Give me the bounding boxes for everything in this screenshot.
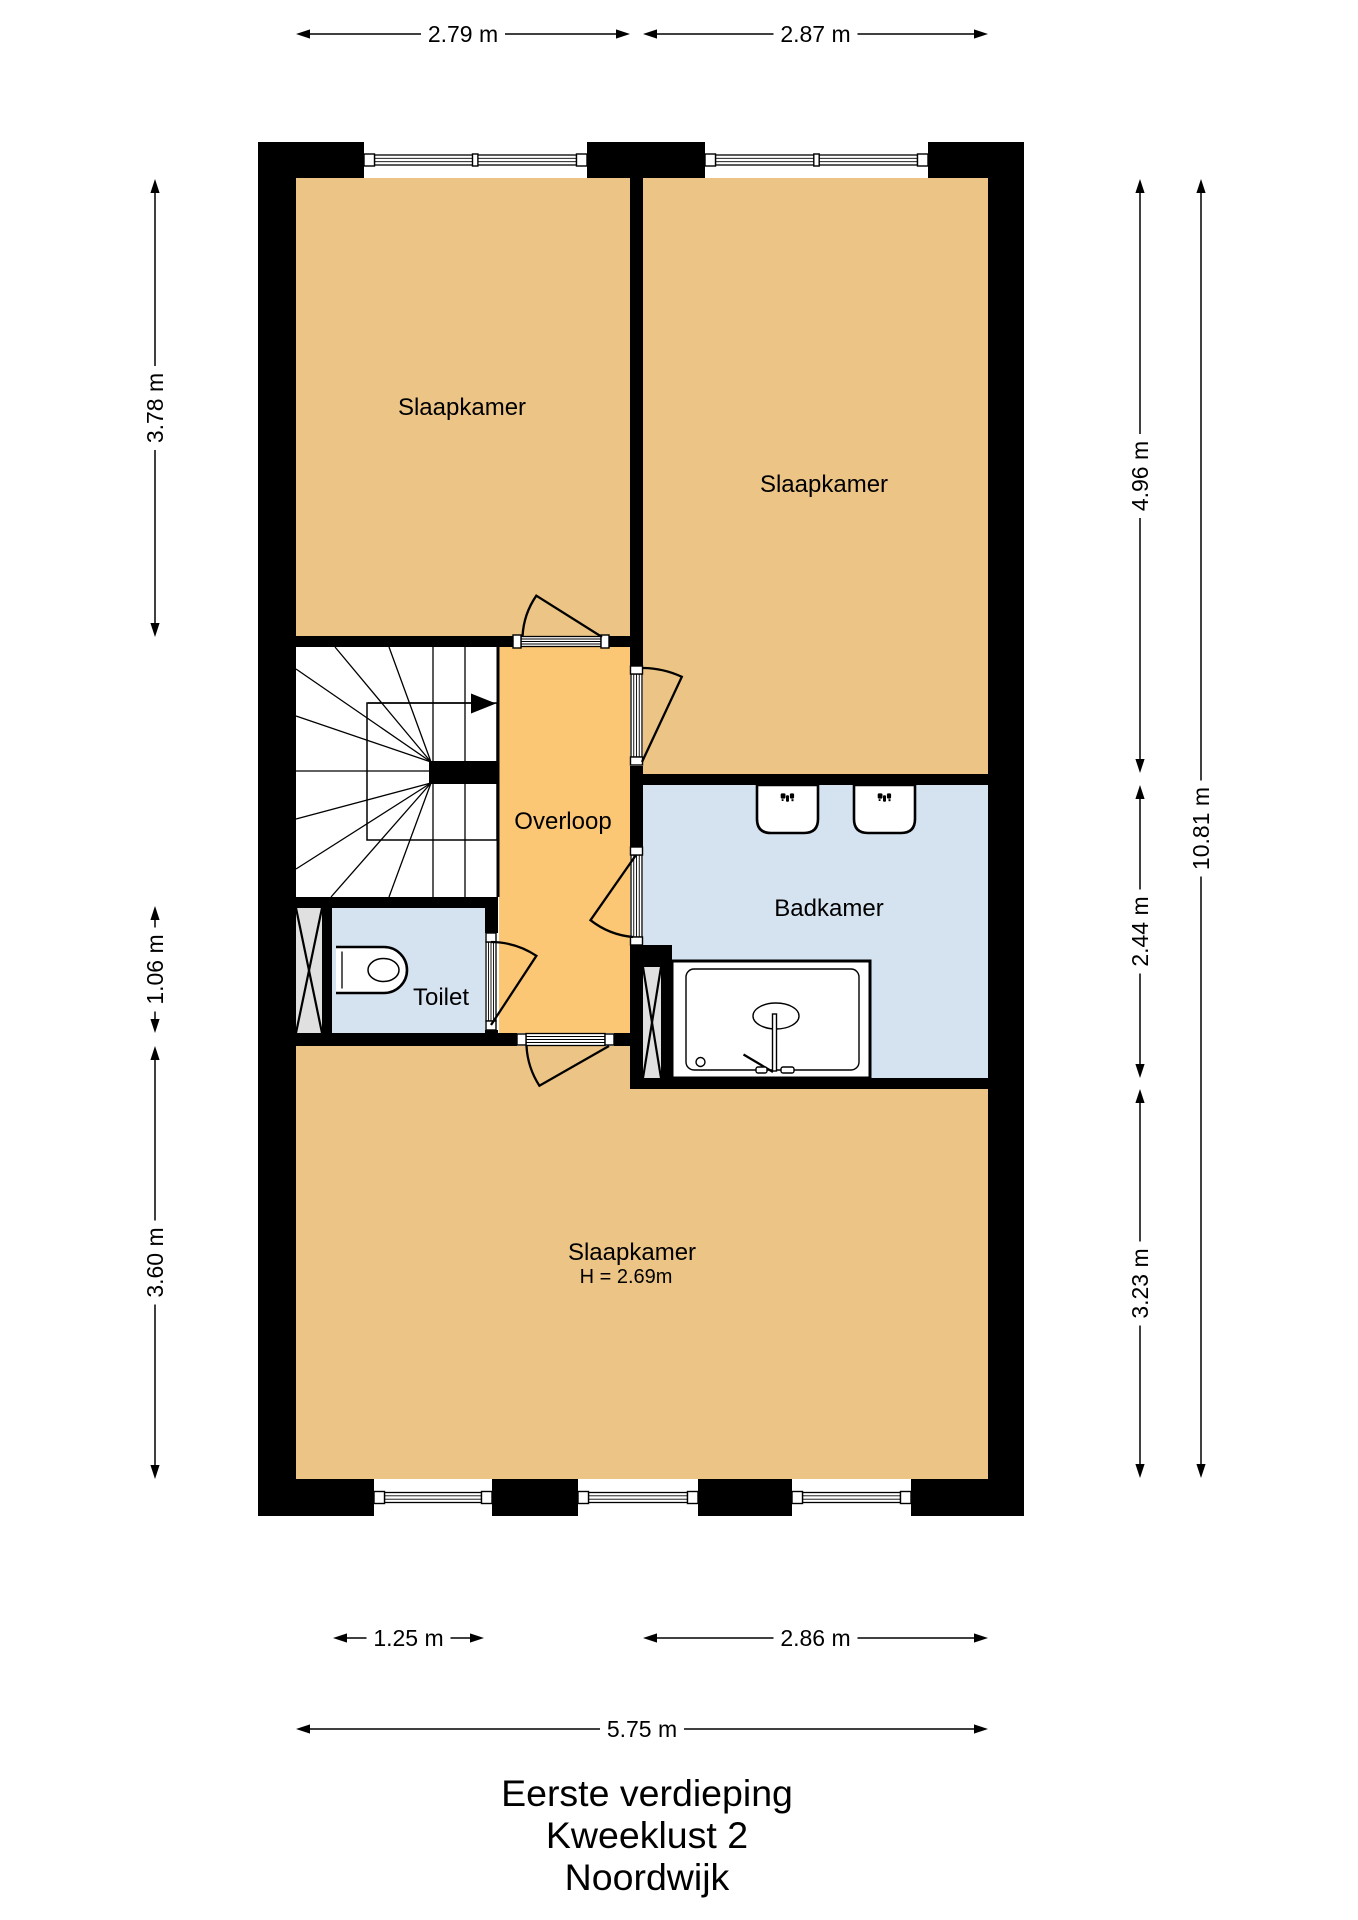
svg-text:4.96 m: 4.96 m — [1127, 441, 1153, 511]
svg-text:2.79 m: 2.79 m — [428, 21, 498, 47]
svg-text:5.75 m: 5.75 m — [607, 1716, 677, 1742]
svg-text:Noordwijk: Noordwijk — [565, 1856, 730, 1898]
svg-text:1.06 m: 1.06 m — [142, 934, 168, 1004]
svg-text:3.78 m: 3.78 m — [142, 373, 168, 443]
svg-text:2.86 m: 2.86 m — [780, 1625, 850, 1651]
svg-text:Eerste verdieping: Eerste verdieping — [501, 1772, 793, 1814]
svg-text:3.60 m: 3.60 m — [142, 1227, 168, 1297]
svg-text:Slaapkamer: Slaapkamer — [568, 1239, 696, 1266]
svg-text:Slaapkamer: Slaapkamer — [760, 471, 888, 498]
svg-text:Badkamer: Badkamer — [774, 895, 883, 922]
svg-text:2.87 m: 2.87 m — [780, 21, 850, 47]
svg-text:10.81 m: 10.81 m — [1188, 787, 1214, 870]
svg-text:Overloop: Overloop — [514, 808, 611, 835]
svg-text:Slaapkamer: Slaapkamer — [398, 394, 526, 421]
svg-text:Kweeklust 2: Kweeklust 2 — [546, 1814, 748, 1856]
svg-text:2.44 m: 2.44 m — [1127, 896, 1153, 966]
svg-text:3.23 m: 3.23 m — [1127, 1248, 1153, 1318]
svg-text:1.25 m: 1.25 m — [373, 1625, 443, 1651]
svg-text:H = 2.69m: H = 2.69m — [580, 1266, 673, 1288]
svg-text:Toilet: Toilet — [413, 984, 469, 1011]
